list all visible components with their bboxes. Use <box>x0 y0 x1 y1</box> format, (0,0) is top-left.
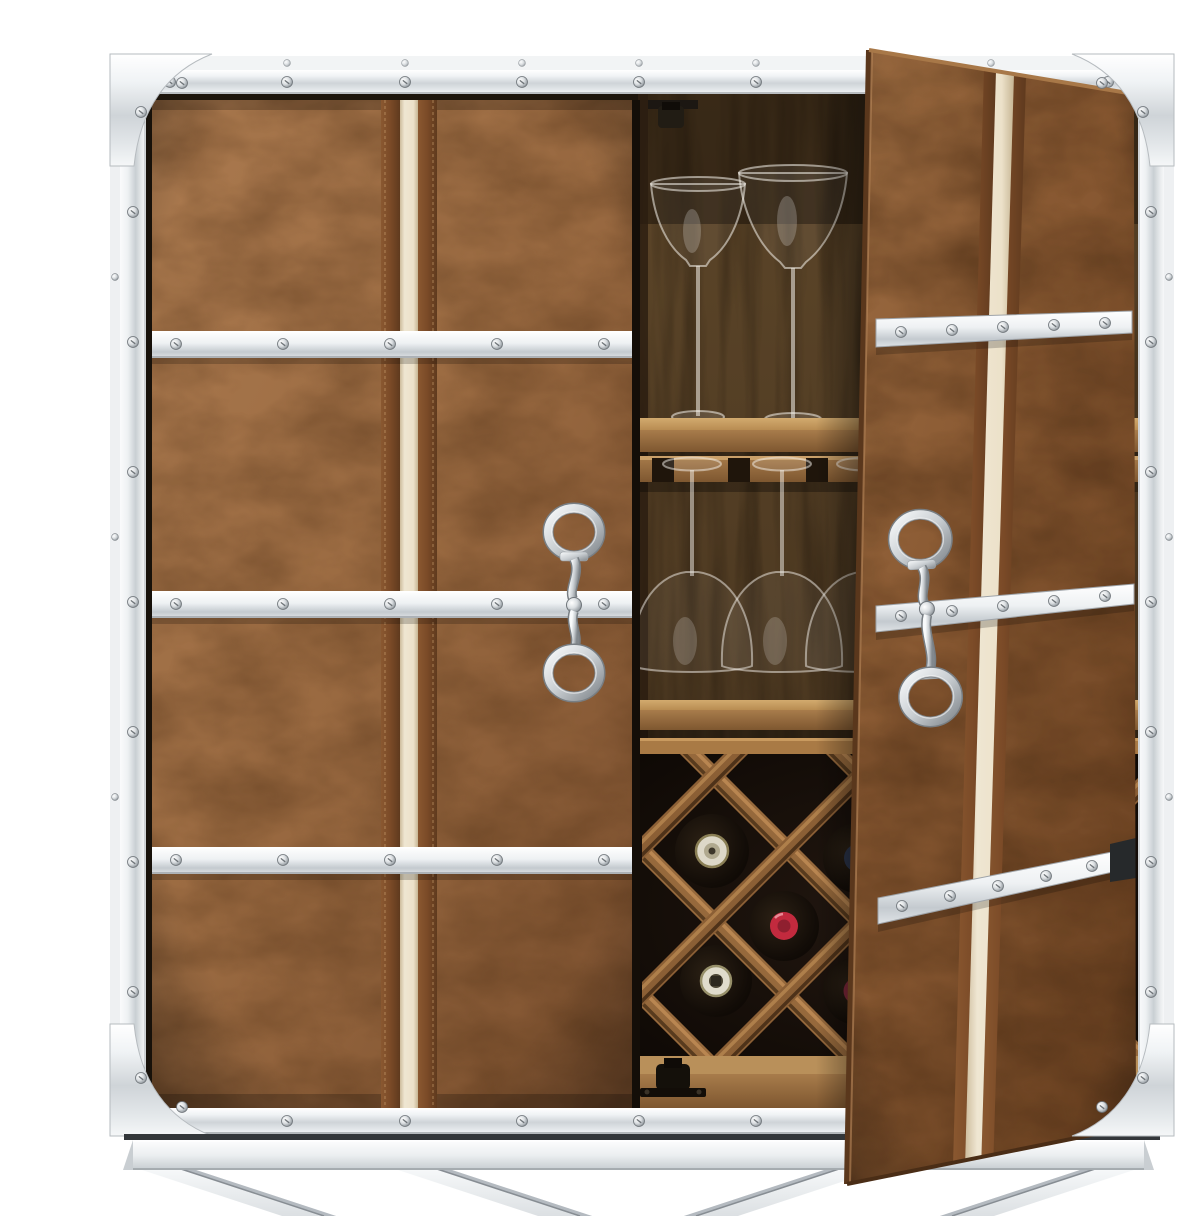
right-door-open <box>840 46 1140 1188</box>
left-door <box>144 94 640 1108</box>
cabinet-illustration <box>40 16 1200 1216</box>
wine-bottle-1 <box>675 814 749 888</box>
handle-joint <box>919 601 935 617</box>
product-photo <box>40 16 1200 1216</box>
left-door-strap-bottom <box>152 847 632 880</box>
left-door-strap-middle <box>152 591 632 624</box>
wine-bottle-2 <box>749 891 819 961</box>
frame-right-face <box>1164 70 1174 1134</box>
handle-joint <box>567 598 582 613</box>
left-door-strap-top <box>152 331 632 364</box>
strap-hinge-clip <box>1110 838 1136 882</box>
base-legs <box>136 1168 1140 1216</box>
frame-left-face <box>110 70 120 1134</box>
left-door-right-gap <box>632 100 640 1108</box>
